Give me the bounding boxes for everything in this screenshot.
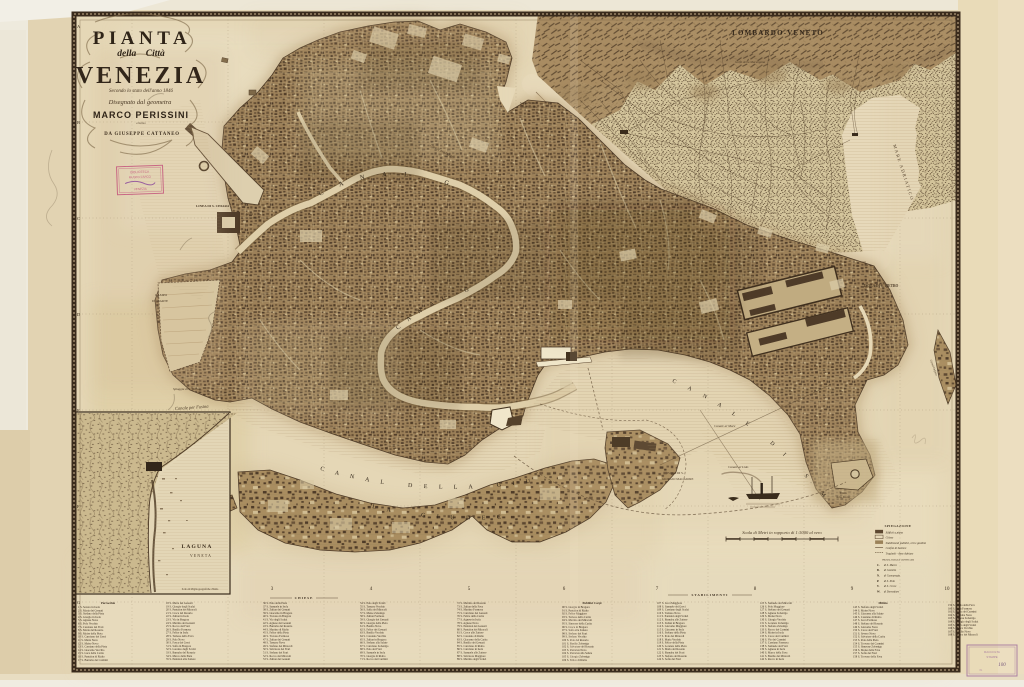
svg-text:W.: W. — [877, 589, 881, 593]
svg-text:89 S. Martino degli Scalzi: 89 S. Martino degli Scalzi — [457, 658, 487, 661]
svg-text:10: 10 — [945, 587, 951, 592]
svg-text:LAGUNA: LAGUNA — [181, 544, 212, 550]
svg-text:17 S. Barnaba dei Carmini: 17 S. Barnaba dei Carmini — [78, 659, 108, 662]
svg-text:100: 100 — [998, 663, 1006, 668]
svg-text:CAMPO: CAMPO — [155, 293, 168, 297]
svg-text:P.: P. — [877, 579, 880, 583]
svg-text:STABILIMENTI: STABILIMENTI — [692, 593, 729, 597]
svg-text:C: C — [77, 216, 80, 221]
svg-text:RACCOLTA: RACCOLTA — [984, 650, 1000, 654]
svg-text:STAMPE: STAMPE — [986, 655, 997, 659]
svg-text:della Motta: della Motta — [836, 495, 850, 499]
svg-text:Misericordia: Misericordia — [519, 105, 538, 109]
svg-text:35 S. Pantalon alle Zattere: 35 S. Pantalon alle Zattere — [166, 658, 196, 661]
svg-text:di S. Marco: di S. Marco — [884, 563, 898, 567]
svg-text:VENEZIA: VENEZIA — [134, 187, 147, 191]
svg-text:ISOLA DI S.: ISOLA DI S. — [667, 471, 684, 475]
svg-text:71 S. Rocco dei Carmini: 71 S. Rocco dei Carmini — [360, 658, 388, 661]
svg-text:Parrocchie: Parrocchie — [101, 601, 116, 605]
svg-text:Canale al Mare: Canale al Mare — [714, 424, 736, 428]
svg-text:di S. Polo: di S. Polo — [884, 579, 896, 583]
svg-text:MARCO PERISSINI: MARCO PERISSINI — [93, 110, 189, 120]
svg-text:della Città: della Città — [117, 49, 165, 59]
svg-text:Golfo della Marangona: Golfo della Marangona — [735, 60, 766, 64]
svg-text:Chiese: Chiese — [886, 536, 894, 540]
svg-text:INIZIALI DELLE CONTRADE: INIZIALI DELLE CONTRADE — [882, 559, 915, 562]
svg-text:N.: N. — [877, 573, 880, 577]
svg-text:di Castello: di Castello — [884, 568, 897, 572]
svg-text:142 S. Rocco in Isola: 142 S. Rocco in Isola — [760, 658, 785, 661]
svg-text:LINEA DI S. CHIARA: LINEA DI S. CHIARA — [196, 204, 230, 208]
svg-text:di S.Chiara: di S.Chiara — [246, 216, 260, 220]
svg-text:124 S. Sofia dei Frari: 124 S. Sofia dei Frari — [657, 658, 681, 661]
svg-text:Scala di Metri in rapporto di: Scala di Metri in rapporto di 1:5000 al … — [742, 530, 822, 535]
svg-text:di Dorsoduro: di Dorsoduro — [884, 589, 900, 593]
svg-text:di Cannaregio: di Cannaregio — [884, 573, 901, 577]
svg-text:BIBLIOTECA: BIBLIOTECA — [130, 170, 150, 175]
svg-text:158 S. Trovaso della Fava: 158 S. Trovaso della Fava — [853, 656, 883, 659]
svg-text:Stabilimenti pubblici, orti e: Stabilimenti pubblici, orti e giardini — [886, 541, 927, 545]
svg-text:C.: C. — [877, 563, 880, 567]
svg-text:GIORGIO MAGGIORE: GIORGIO MAGGIORE — [662, 477, 693, 481]
svg-text:B.: B. — [877, 568, 880, 572]
svg-text:Edificii a piano: Edificii a piano — [885, 530, 904, 534]
svg-text:DI MARTE: DI MARTE — [152, 299, 168, 303]
svg-text:VENEZIA: VENEZIA — [76, 63, 206, 89]
svg-text:Confini di Sestiere: Confini di Sestiere — [886, 546, 907, 550]
svg-text:ISOLA DI S. PIETRO: ISOLA DI S. PIETRO — [864, 284, 899, 288]
svg-text:168 S. Marco dei Miracoli: 168 S. Marco dei Miracoli — [948, 634, 978, 637]
svg-text:E: E — [77, 408, 80, 413]
svg-text:B: B — [77, 120, 80, 125]
svg-text:PIANTA: PIANTA — [93, 28, 191, 49]
svg-text:Scala di Miglia geografiche d': Scala di Miglia geografiche d'Italia — [182, 588, 219, 591]
svg-text:VENETA: VENETA — [190, 554, 212, 558]
svg-text:53 S. Zulian dei Gesuati: 53 S. Zulian dei Gesuati — [263, 658, 290, 661]
svg-text:Secondo lo stato dell'anno 184: Secondo lo stato dell'anno 1846 — [109, 89, 174, 94]
svg-text:CHIESE: CHIESE — [295, 596, 314, 600]
svg-text:DA GIUSEPPE CATTANEO: DA GIUSEPPE CATTANEO — [104, 132, 180, 137]
svg-text:SPIEGAZIONE: SPIEGAZIONE — [885, 524, 912, 528]
svg-text:LOMBARDO-VENETO: LOMBARDO-VENETO — [732, 29, 824, 37]
svg-text:MUSEO CIVICO: MUSEO CIVICO — [129, 175, 152, 180]
svg-text:di S. Croce: di S. Croce — [884, 584, 897, 588]
svg-text:Spiaggia di S. Marta: Spiaggia di S. Marta — [173, 387, 200, 391]
svg-text:Disegnato dal geometra: Disegnato dal geometra — [108, 99, 172, 106]
svg-text:e inciso: e inciso — [136, 121, 146, 125]
svg-text:Milizia: Milizia — [879, 601, 888, 605]
svg-text:Canale al Lido: Canale al Lido — [728, 465, 749, 469]
svg-text:Pubblici Corpi: Pubblici Corpi — [583, 601, 602, 605]
svg-text:Traghetti - Anse Adriane: Traghetti - Anse Adriane — [886, 551, 914, 555]
svg-text:N.: N. — [980, 668, 983, 672]
